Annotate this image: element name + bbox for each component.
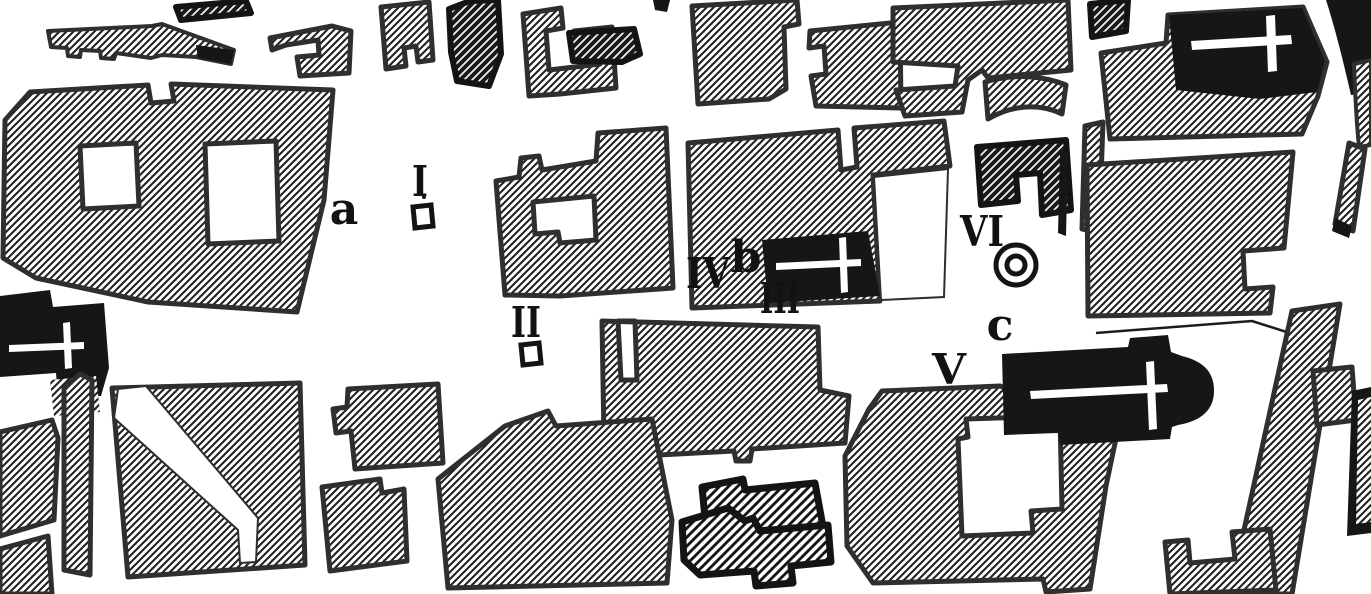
top-parallelogram-block xyxy=(176,1,251,20)
left-edge-strip-upper xyxy=(0,420,58,536)
label-numeral-I: I xyxy=(412,157,428,206)
center-u-block xyxy=(496,128,673,296)
small-block-hooked xyxy=(322,479,407,571)
top-small-black-bit xyxy=(653,0,670,12)
top-c-shape-block xyxy=(270,26,351,76)
lower-left-blocks xyxy=(0,374,305,594)
narrow-vertical-strip xyxy=(64,374,92,575)
site-v-group xyxy=(845,321,1299,592)
map-canvas: I a II IV b III VI c V xyxy=(0,0,1371,594)
label-letter-a: a xyxy=(330,184,359,235)
plaza-outline xyxy=(1096,321,1299,336)
right-corner-inner-hatch xyxy=(1354,60,1371,147)
bottom-right-blocks xyxy=(1165,304,1371,594)
bottom-right-l-block xyxy=(1165,529,1276,594)
right-edge-hatched-strip xyxy=(1335,143,1365,231)
small-block-stepped xyxy=(333,384,443,469)
top-block-right-of-slot xyxy=(809,22,901,108)
site-square-marker-I xyxy=(413,205,433,228)
right-edge-wall-hatch xyxy=(1356,397,1371,524)
large-right-block xyxy=(1087,152,1293,316)
label-numeral-V: V xyxy=(931,345,968,394)
label-numeral-IV: IV xyxy=(686,249,731,298)
left-edge-strip-lower xyxy=(0,536,52,594)
top-right-church xyxy=(1169,8,1325,99)
label-numeral-VI: VI xyxy=(959,207,1004,256)
town-plan-svg: I a II IV b III VI c V xyxy=(0,0,1371,594)
curved-wing-block xyxy=(985,77,1066,119)
small-square-annex xyxy=(1313,367,1356,425)
top-dark-tall-block xyxy=(449,0,501,86)
double-circle-monument-inner xyxy=(1007,256,1025,274)
large-bottom-center-block xyxy=(438,411,672,588)
small-dark-parallelogram xyxy=(1090,0,1128,37)
label-numeral-III: III xyxy=(760,274,800,323)
label-numeral-II: II xyxy=(511,298,541,347)
label-letter-c: c xyxy=(987,300,1014,351)
white-trapezoid-plaza xyxy=(874,169,948,300)
top-notched-block xyxy=(381,2,433,69)
top-dark-bar-block xyxy=(569,29,640,62)
large-left-block-with-courtyards xyxy=(3,84,333,312)
label-letter-b: b xyxy=(731,232,762,283)
top-block-left-of-slot xyxy=(692,0,799,104)
temple-vi-u-structure xyxy=(977,140,1071,215)
